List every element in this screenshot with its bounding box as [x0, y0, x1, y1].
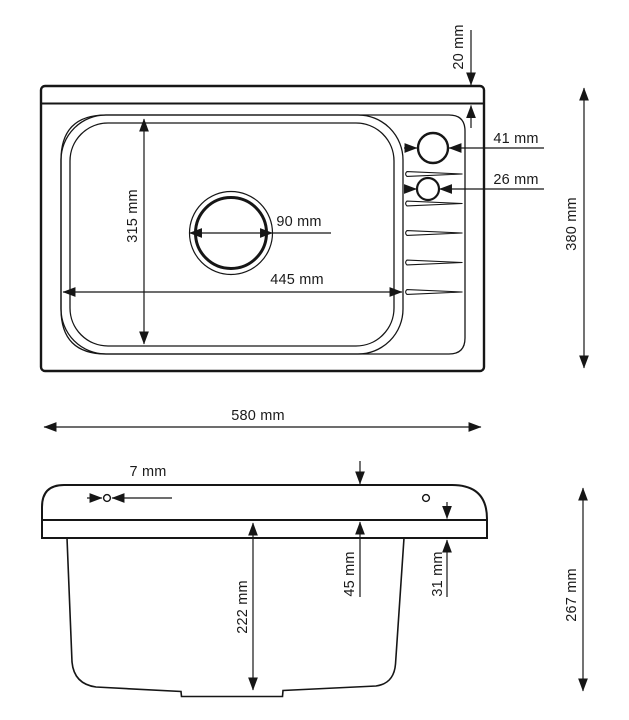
drawing-linework — [0, 0, 629, 720]
dim-label-rim-height: 45 mm — [342, 551, 358, 596]
side-view-mounting-hole-left — [104, 495, 111, 502]
dim-label-overall-width: 580 mm — [231, 408, 285, 424]
dim-label-overall-depth: 380 mm — [564, 197, 580, 251]
dim-label-back-ledge: 20 mm — [451, 24, 467, 69]
dim-label-overall-height: 267 mm — [564, 568, 580, 622]
dim-label-bowl-width: 315 mm — [125, 189, 141, 243]
dim-label-faucet-hole-small: 26 mm — [493, 172, 538, 188]
dim-label-bowl-length: 445 mm — [270, 272, 324, 288]
side-view-mounting-hole-right — [423, 495, 430, 502]
dim-label-apron-height: 31 mm — [430, 551, 446, 596]
dim-label-drain-hole: 90 mm — [276, 214, 321, 230]
dim-label-bowl-height: 222 mm — [235, 580, 251, 634]
sink-technical-drawing: 20 mm 41 mm 26 mm 90 mm 445 mm 315 mm 38… — [0, 0, 629, 720]
dim-label-mounting-hole: 7 mm — [129, 464, 166, 480]
side-view — [42, 461, 583, 697]
side-view-rim-outline — [42, 485, 487, 538]
top-view-outer-edge — [41, 86, 484, 371]
dim-label-faucet-hole-large: 41 mm — [493, 131, 538, 147]
